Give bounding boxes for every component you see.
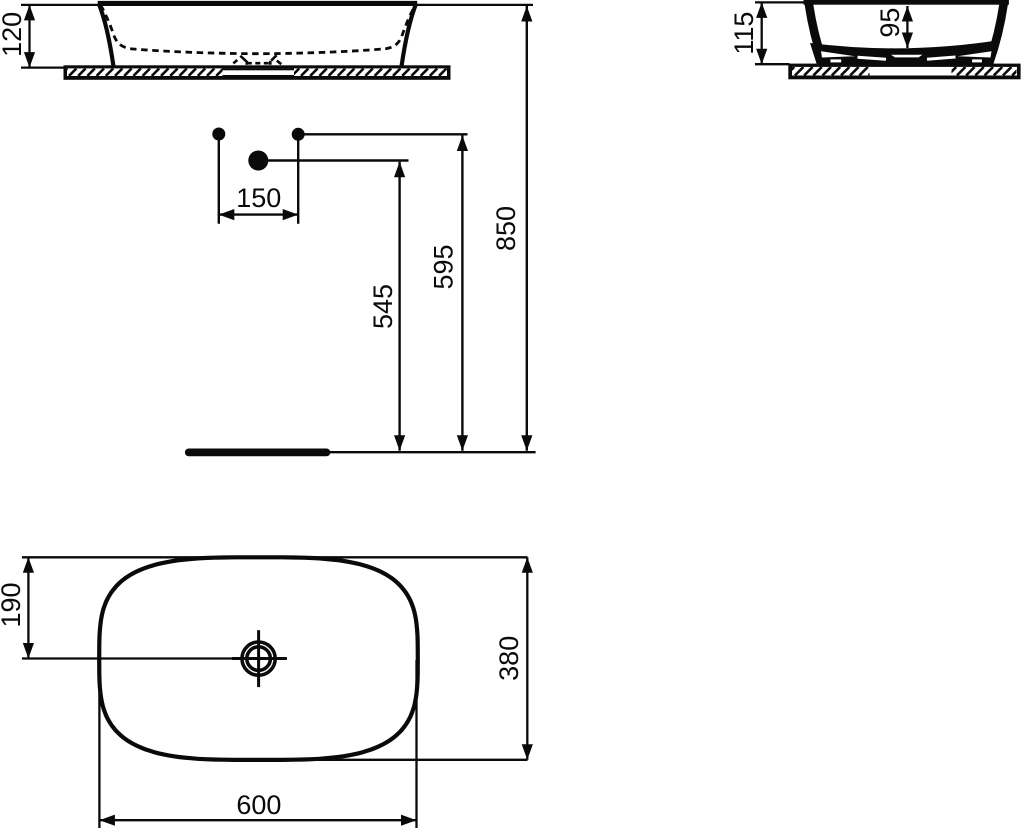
svg-text:850: 850	[491, 206, 521, 251]
svg-text:120: 120	[0, 12, 27, 57]
svg-text:150: 150	[236, 183, 281, 213]
svg-text:600: 600	[236, 790, 281, 820]
svg-text:545: 545	[368, 284, 398, 329]
svg-text:95: 95	[875, 8, 905, 38]
svg-text:190: 190	[0, 582, 26, 627]
svg-text:380: 380	[494, 636, 524, 681]
svg-text:595: 595	[428, 244, 458, 289]
svg-text:115: 115	[729, 12, 759, 55]
